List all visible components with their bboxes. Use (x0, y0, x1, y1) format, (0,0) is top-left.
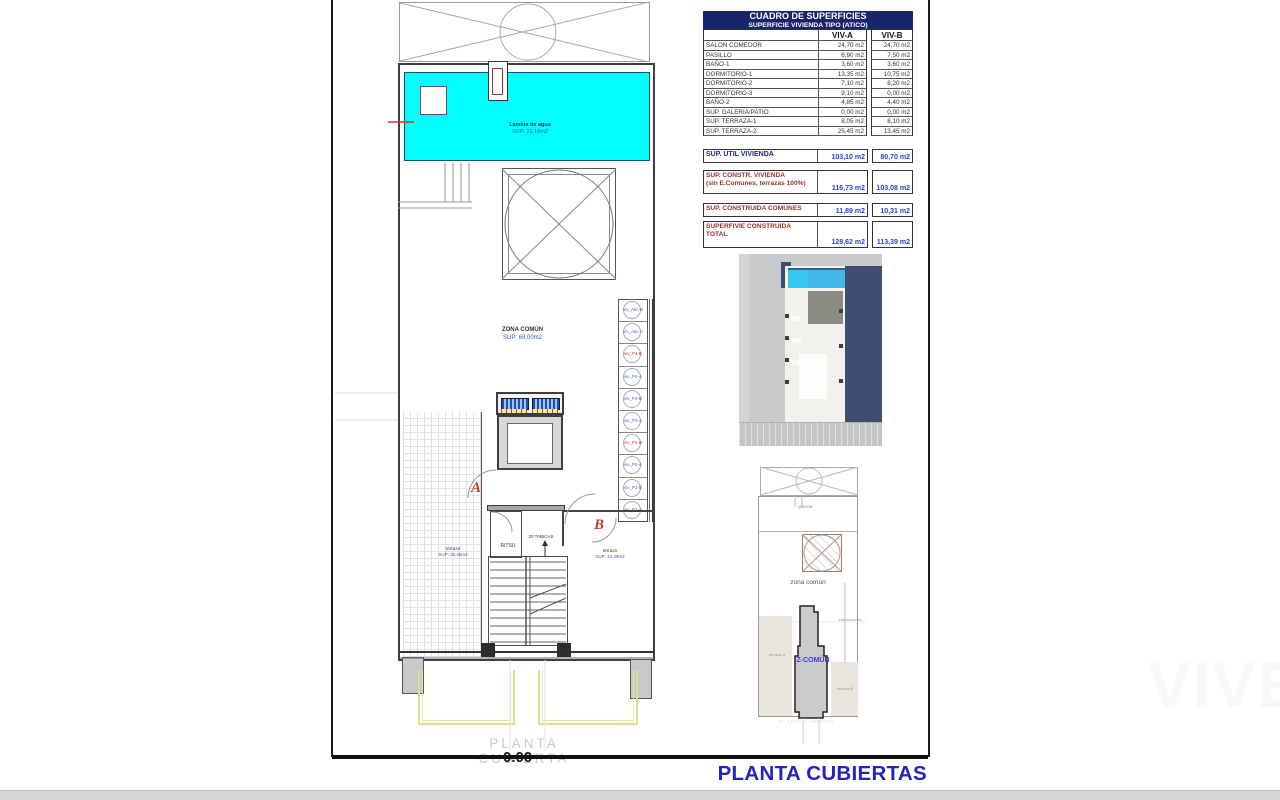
solar-panels-box (496, 392, 564, 415)
row-label: SUP. TERRAZA-1 (703, 117, 818, 127)
terrace-left-label: terraza SUP: 25,45m2 (423, 546, 483, 558)
vent-cell: viv_P3-A (619, 411, 647, 433)
key-wall-line (758, 531, 858, 532)
summary-value-a: 128,62 m2 (818, 221, 868, 248)
vent-label: viv_P1-A (619, 507, 647, 512)
row-value-b: 8,10 m2 (871, 117, 913, 127)
brand-watermark: VIVE (1148, 648, 1280, 722)
row-label: DORMITORIO-1 (703, 70, 818, 80)
surfaces-table-title: CUADRO DE SUPERFICIES (703, 12, 913, 22)
pool-equipment-box (420, 86, 447, 115)
railing-left (418, 670, 515, 725)
vent-cell: viv_P2-A (619, 455, 647, 477)
row-value-a: 0,00 m2 (818, 108, 867, 118)
row-value-b: 24,70 m2 (871, 41, 913, 51)
vent-label: viv_P2-B (619, 440, 647, 445)
key-caption: PLANTA CUBIERTA (777, 719, 837, 724)
row-value-a: 13,35 m2 (818, 70, 867, 80)
vent-label: viv_Atic-A (619, 329, 647, 334)
summary-label-line2: TOTAL (706, 231, 817, 239)
render-plant (839, 379, 843, 383)
summary-label-line1: SUPERFIVIE CONSTRUIDA (706, 223, 817, 231)
key-terrace-a-area (759, 616, 792, 716)
row-label: SALON COMEDOR (703, 41, 818, 51)
key-pool-label: piscina (788, 504, 823, 509)
elevator-cabin (507, 423, 553, 464)
railing-right-inner (542, 670, 634, 721)
key-skylight (802, 534, 842, 572)
render-lounger (791, 338, 801, 343)
summary-label-line1: SUP. CONSTR. VIVIENDA (706, 172, 817, 180)
structural-column (481, 643, 495, 657)
vent-cell: viv_P3-B (619, 389, 647, 411)
surfaces-table: VIV-A VIV-B SALON COMEDOR 24,70 m2 24,70… (703, 29, 913, 136)
summary-comunes: SUP. CONSTRUIDA COMUNES 11,89 m2 10,31 m… (703, 203, 913, 217)
terrace-left-tiles (403, 412, 482, 657)
vent-cell: viv_P4-A (619, 367, 647, 389)
common-zone-label: ZONA COMÚN SUP: 69,00m2 (465, 326, 580, 342)
vent-cell: viv_Atic-A (619, 322, 647, 344)
row-value-a: 9,10 m2 (818, 89, 867, 99)
summary-value-b: 80,70 m2 (872, 149, 913, 163)
row-label: DORMITORIO-3 (703, 89, 818, 99)
render-plant (839, 344, 843, 348)
common-zone-area: SUP: 69,00m2 (465, 334, 580, 342)
terrace-left-area: SUP: 25,45m2 (423, 552, 483, 558)
page-bottom-strip (0, 790, 1280, 800)
render-lounger (791, 316, 801, 321)
summary-label: SUP. UTIL VIVIENDA (703, 149, 818, 163)
railing-right (538, 670, 638, 725)
vent-label: viv_P3-A (619, 418, 647, 423)
render-penthouse-volume (799, 354, 827, 399)
summary-label: SUPERFIVIE CONSTRUIDA TOTAL (703, 221, 818, 248)
summary-value-a: 103,10 m2 (818, 149, 868, 163)
drawing-sheet: 0.00 Lamina de agua SUP: 21,16m2 ZONA CO… (0, 0, 1280, 800)
summary-value-b: 10,31 m2 (872, 203, 913, 217)
vent-label: viv_P2-A (619, 462, 647, 467)
panel-label-strip-left (501, 409, 527, 413)
col-header-viv-b: VIV-B (871, 30, 913, 41)
vent-shaft-strip: viv_Atic-B viv_Atic-A viv_P4-B viv_P4-A … (618, 299, 648, 522)
summary-util: SUP. UTIL VIVIENDA 103,10 m2 80,70 m2 (703, 149, 913, 163)
key-installations-label: instalaciones (834, 617, 866, 622)
vent-cell: viv_P4-B (619, 344, 647, 366)
key-terrace-b-label: terraza-B (832, 686, 858, 691)
row-value-b: 13,45 m2 (871, 127, 913, 137)
pool-label: Lamina de agua SUP: 21,16m2 (470, 122, 590, 136)
aerial-render-image (739, 254, 882, 446)
sheet-border-bottom (332, 755, 928, 759)
structural-column (557, 643, 571, 657)
railing-left-inner (422, 670, 511, 721)
common-zone-name: ZONA COMÚN (465, 326, 580, 334)
vent-strip-wall (649, 299, 653, 522)
col-header-empty (703, 30, 818, 41)
vent-label: viv_Atic-B (619, 307, 647, 312)
sheet-border-left (331, 0, 333, 757)
key-terrace-a-label: terraza-A (764, 652, 790, 657)
vent-label: viv_P1-B (619, 485, 647, 490)
render-ground-left (739, 254, 749, 446)
row-label: SUP. GALERIA/PATIO (703, 108, 818, 118)
summary-total: SUPERFIVIE CONSTRUIDA TOTAL 128,62 m2 11… (703, 221, 913, 248)
row-label: DORMITORIO-2 (703, 79, 818, 89)
summary-value-a: 116,73 m2 (818, 170, 868, 194)
row-label: BAÑO-2 (703, 98, 818, 108)
key-pergola-outline (760, 467, 858, 496)
render-plant (785, 358, 789, 362)
surfaces-table-subtitle: SUPERFICIE VIVIENDA TIPO (ATICO) (703, 22, 913, 30)
render-skylight (808, 291, 843, 324)
render-plant (785, 336, 789, 340)
panel-label-strip-right (532, 409, 558, 413)
row-value-b: 0,00 m2 (871, 108, 913, 118)
ritsu-room-label: RITSU (494, 543, 522, 549)
vent-cell: viv_P2-B (619, 433, 647, 455)
render-street (739, 422, 882, 446)
row-value-a: 4,85 m2 (818, 98, 867, 108)
render-pool (788, 268, 845, 288)
pool-label-area: SUP: 21,16m2 (470, 129, 590, 136)
staircase (488, 556, 568, 646)
summary-label-line2: (sin E.Comunes, terrazas 100%) (706, 180, 817, 188)
sheet-title: PLANTA CUBIERTAS (695, 762, 927, 786)
summary-value-b: 103,08 m2 (872, 170, 913, 194)
row-value-b: 7,50 m2 (871, 51, 913, 61)
key-zcommon-label: Z-COMÚN (790, 657, 836, 664)
terrace-right-label: terraza SUP: 13,45m2 (580, 548, 640, 560)
summary-value-b: 113,39 m2 (872, 221, 913, 248)
render-plant (785, 380, 789, 384)
vent-label: viv_P3-B (619, 396, 647, 401)
render-plant (785, 314, 789, 318)
stairs-note-label: 20 TABICAS (522, 534, 560, 539)
summary-constr: SUP. CONSTR. VIVIENDA (sin E.Comunes, te… (703, 170, 913, 194)
row-value-b: 4,40 m2 (871, 98, 913, 108)
vent-label: viv_P4-A (619, 374, 647, 379)
col-header-viv-a: VIV-A (818, 30, 867, 41)
row-value-a: 24,70 m2 (818, 41, 867, 51)
summary-value-a: 11,89 m2 (818, 203, 868, 217)
surfaces-table-header: CUADRO DE SUPERFICIES SUPERFICIE VIVIEND… (703, 11, 913, 29)
row-value-a: 6,90 m2 (818, 51, 867, 61)
pool-label-name: Lamina de agua (470, 122, 590, 129)
vent-cell: viv_P1-B (619, 478, 647, 500)
vent-cell: viv_P1-A (619, 500, 647, 521)
row-value-a: 25,45 m2 (818, 127, 867, 137)
vent-cell: viv_Atic-B (619, 300, 647, 322)
summary-label: SUP. CONSTRUIDA COMUNES (703, 203, 818, 217)
render-shadow (843, 266, 882, 426)
ritsu-room (490, 511, 522, 558)
rooftop-pergola-outline (399, 2, 650, 62)
row-value-b: 0,00 m2 (871, 89, 913, 99)
render-plant (839, 309, 843, 313)
door-a-label: A (471, 480, 481, 497)
skylight-inner (508, 174, 610, 274)
row-label: SUP. TERRAZA-2 (703, 127, 818, 137)
row-label: BAÑO-1 (703, 60, 818, 70)
door-b-label: B (594, 517, 604, 534)
terrace-right-area: SUP: 13,45m2 (580, 554, 640, 560)
sheet-border-right (928, 0, 930, 757)
row-value-b: 3,60 m2 (871, 60, 913, 70)
pool-ladder-inner (492, 68, 503, 95)
row-value-a: 3,60 m2 (818, 60, 867, 70)
row-value-a: 7,10 m2 (818, 79, 867, 89)
summary-label: SUP. CONSTR. VIVIENDA (sin E.Comunes, te… (703, 170, 818, 194)
row-label: PASILLO (703, 51, 818, 61)
row-value-b: 10,75 m2 (871, 70, 913, 80)
vent-label: viv_P4-B (619, 351, 647, 356)
key-common-label: zona común (780, 579, 836, 586)
row-value-b: 8,20 m2 (871, 79, 913, 89)
row-value-a: 8,05 m2 (818, 117, 867, 127)
